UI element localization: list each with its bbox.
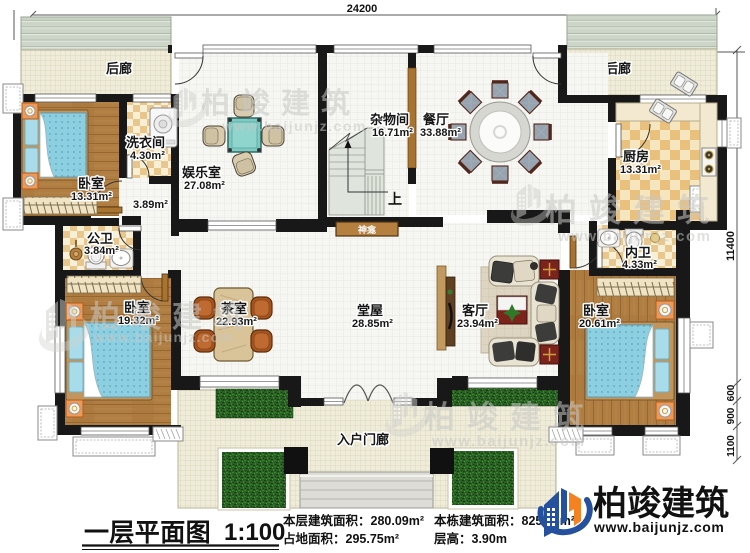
svg-text:3.89m²: 3.89m² (133, 199, 168, 211)
svg-text:本层建筑面积：280.09m²: 本层建筑面积：280.09m² (283, 513, 424, 528)
svg-text:4.33m²: 4.33m² (622, 259, 657, 271)
svg-text:24200: 24200 (347, 3, 378, 15)
svg-text:堂屋: 堂屋 (357, 303, 383, 318)
svg-text:柏竣建筑: 柏竣建筑 (201, 86, 361, 120)
svg-text:11400: 11400 (725, 231, 737, 261)
svg-text:柏竣建筑: 柏竣建筑 (545, 192, 721, 228)
svg-text:13.31m²: 13.31m² (71, 191, 112, 203)
svg-text:上: 上 (388, 191, 402, 207)
svg-text:20.61m²: 20.61m² (579, 318, 620, 330)
svg-text:一层平面图: 一层平面图 (84, 519, 211, 547)
svg-text:柏竣建筑: 柏竣建筑 (424, 400, 596, 435)
svg-text:1:100: 1:100 (224, 519, 285, 546)
svg-text:卧室: 卧室 (78, 176, 104, 191)
svg-text:1100: 1100 (726, 435, 737, 457)
svg-text:杂物间: 杂物间 (370, 112, 409, 127)
svg-text:16.71m²: 16.71m² (372, 127, 413, 139)
svg-text:13.31m²: 13.31m² (620, 164, 661, 176)
svg-text:厨房: 厨房 (623, 149, 649, 164)
svg-text:占地面积：295.75m²: 占地面积：295.75m² (283, 531, 399, 546)
svg-text:28.85m²: 28.85m² (352, 318, 393, 330)
svg-text:www.baijunjz.com: www.baijunjz.com (431, 433, 585, 450)
svg-text:层高：3.90m: 层高：3.90m (434, 531, 507, 546)
svg-text:客厅: 客厅 (462, 303, 488, 318)
svg-text:神龛: 神龛 (358, 224, 377, 235)
svg-text:4.30m²: 4.30m² (130, 150, 165, 162)
svg-text:卧室: 卧室 (583, 303, 609, 318)
svg-text:后廊: 后廊 (106, 61, 132, 76)
svg-text:33.88m²: 33.88m² (420, 127, 461, 139)
svg-text:柏竣建筑: 柏竣建筑 (593, 484, 729, 523)
svg-text:入户门廊: 入户门廊 (337, 432, 389, 447)
svg-text:餐厅: 餐厅 (422, 112, 449, 127)
svg-text:洗衣间: 洗衣间 (126, 135, 165, 150)
svg-text:900: 900 (726, 407, 737, 424)
svg-text:内卫: 内卫 (625, 245, 651, 260)
svg-text:www.baijunjz.com: www.baijunjz.com (221, 118, 367, 134)
svg-text:www.baijunjz.com: www.baijunjz.com (593, 519, 724, 535)
svg-text:23.94m²: 23.94m² (457, 318, 498, 330)
svg-text:公卫: 公卫 (87, 231, 113, 246)
svg-text:27.08m²: 27.08m² (184, 180, 225, 192)
svg-text:3.84m²: 3.84m² (84, 245, 119, 257)
svg-text:www.baijunjz.com: www.baijunjz.com (93, 329, 234, 345)
svg-text:后廊: 后廊 (605, 61, 631, 76)
svg-text:娱乐室: 娱乐室 (182, 165, 221, 180)
svg-text:www.baijunjz.com: www.baijunjz.com (557, 228, 711, 245)
svg-text:600: 600 (726, 384, 737, 401)
